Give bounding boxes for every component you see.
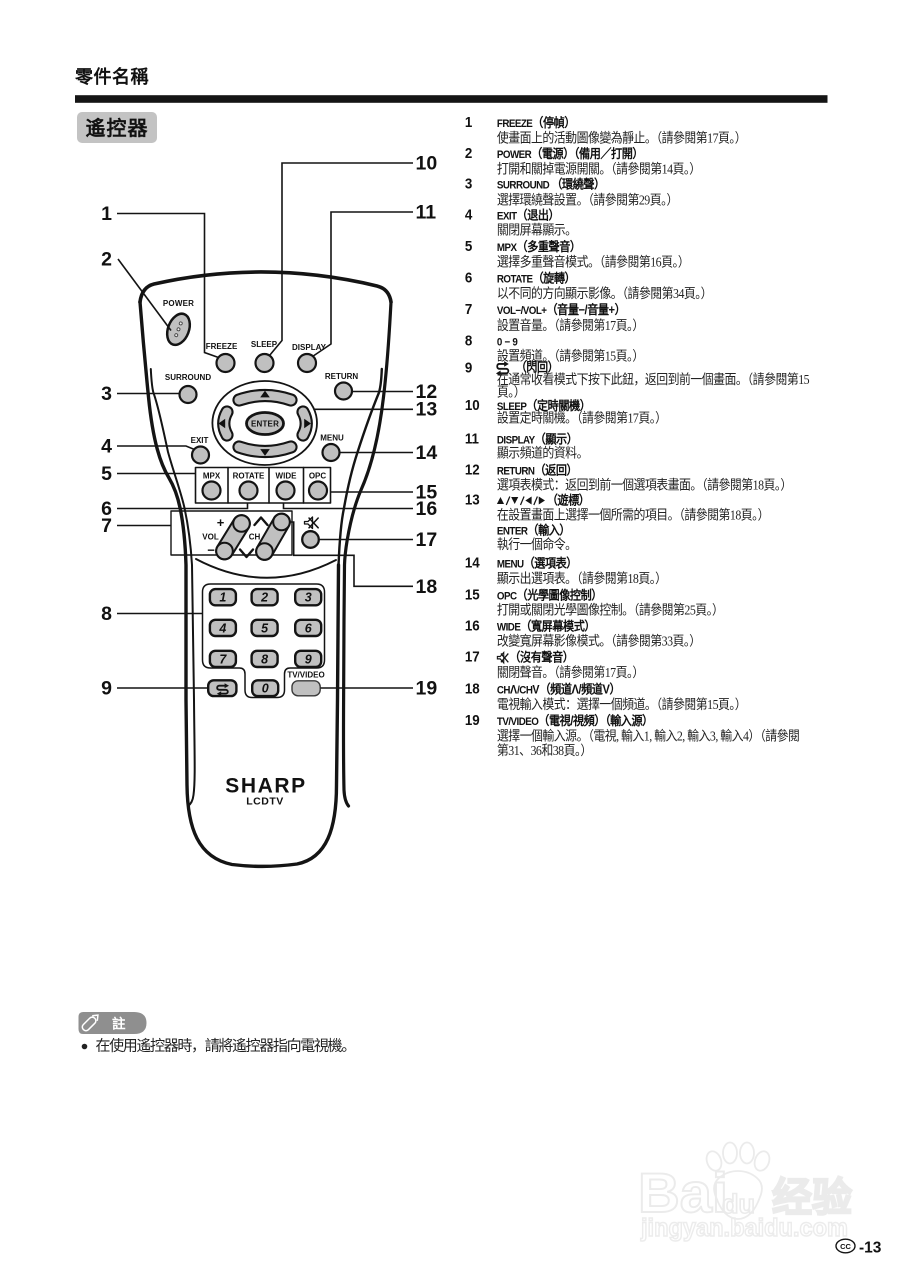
svg-text:4: 4 (218, 621, 226, 635)
svg-text:使畫面上的活動圖像變為靜止。（請參閱第17頁。）: 使畫面上的活動圖像變為靜止。（請參閱第17頁。） (497, 130, 746, 146)
svg-text:WIDE: WIDE (276, 472, 298, 481)
svg-text:13: 13 (416, 399, 438, 421)
svg-text:11: 11 (416, 202, 437, 224)
svg-text:ROTATE: ROTATE (233, 472, 265, 481)
svg-text:CH: CH (249, 533, 261, 542)
svg-text:WIDE（寬屏幕模式）: WIDE（寬屏幕模式） (497, 619, 595, 634)
svg-text:4: 4 (465, 207, 473, 224)
svg-text:EXIT: EXIT (191, 436, 209, 445)
svg-text:16: 16 (465, 618, 480, 635)
svg-text:POWER: POWER (163, 299, 194, 308)
svg-text:0: 0 (262, 682, 269, 696)
svg-text:4: 4 (101, 436, 112, 458)
svg-text:MPX: MPX (203, 472, 221, 481)
svg-text:在設置畫面上選擇一個所需的項目。（請參閱第18頁。）: 在設置畫面上選擇一個所需的項目。（請參閱第18頁。） (497, 507, 769, 523)
svg-text:8: 8 (465, 333, 473, 350)
svg-text:SURROUND （環繞聲）: SURROUND （環繞聲） (497, 177, 605, 192)
svg-text:7: 7 (219, 652, 227, 666)
svg-text:-13: -13 (859, 1240, 882, 1257)
svg-text:RETURN: RETURN (325, 372, 359, 381)
svg-text:SURROUND: SURROUND (165, 373, 211, 382)
svg-text:SHARP: SHARP (225, 775, 307, 798)
svg-text:9: 9 (465, 360, 473, 377)
svg-text:OPC（光學圖像控制）: OPC（光學圖像控制） (497, 588, 602, 603)
svg-text:1: 1 (219, 591, 226, 605)
svg-text:打開或關閉光學圖像控制。（請參閱第25頁。）: 打開或關閉光學圖像控制。（請參閱第25頁。） (497, 603, 724, 618)
svg-text:以不同的方向顯示影像。（請參閱第34頁。）: 以不同的方向顯示影像。（請參閱第34頁。） (497, 285, 712, 301)
svg-text:18: 18 (465, 681, 480, 698)
svg-text:5: 5 (101, 463, 112, 485)
svg-text:打開和關掉電源開關。（請參閱第14頁。）: 打開和關掉電源開關。（請參閱第14頁。） (497, 162, 701, 177)
svg-text:選擇環繞聲設置。（請參閱第29頁。）: 選擇環繞聲設置。（請參閱第29頁。） (497, 192, 678, 208)
svg-text:18: 18 (416, 576, 438, 598)
svg-text:9: 9 (101, 678, 112, 700)
svg-text:在通常收看模式下按下此鈕，返回到前一個畫面。（請參閱第15: 在通常收看模式下按下此鈕，返回到前一個畫面。（請參閱第15 (497, 371, 809, 387)
svg-text:FREEZE: FREEZE (206, 342, 238, 351)
svg-text:頁。）: 頁。） (497, 385, 525, 400)
svg-text:SLEEP: SLEEP (251, 340, 278, 349)
svg-text:7: 7 (101, 515, 112, 537)
svg-text:改變寬屏幕影像模式。（請參閱第33頁。）: 改變寬屏幕影像模式。（請參閱第33頁。） (497, 633, 701, 649)
svg-text:12: 12 (465, 462, 480, 479)
svg-text:8: 8 (101, 603, 112, 625)
svg-text:MPX（多重聲音）: MPX（多重聲音） (497, 239, 581, 254)
svg-text:6: 6 (305, 621, 313, 635)
svg-text:6: 6 (465, 270, 473, 287)
svg-text:設置音量。（請參閱第17頁。）: 設置音量。（請參閱第17頁。） (497, 317, 644, 333)
svg-text:VOL: VOL (202, 533, 219, 542)
svg-text:設置定時關機。（請參閱第17頁。）: 設置定時關機。（請參閱第17頁。） (497, 410, 667, 426)
svg-text:顯示頻道的資料。: 顯示頻道的資料。 (497, 445, 588, 461)
svg-text:14: 14 (465, 555, 480, 572)
svg-text:LCDTV: LCDTV (246, 796, 284, 808)
svg-text:1: 1 (101, 203, 112, 225)
svg-text:16: 16 (416, 498, 438, 520)
svg-text:DISPLAY（顯示）: DISPLAY（顯示） (497, 432, 577, 447)
svg-text:MENU（選項表）: MENU（選項表） (497, 556, 577, 571)
svg-text:0 − 9: 0 − 9 (497, 337, 518, 349)
svg-text:執行一個命令。: 執行一個命令。 (497, 536, 577, 552)
svg-text:RETURN（返回）: RETURN（返回） (497, 463, 577, 478)
svg-text:TV/VIDEO: TV/VIDEO (287, 671, 324, 680)
svg-text:關閉屏幕顯示。: 關閉屏幕顯示。 (497, 223, 577, 238)
svg-text:14: 14 (416, 442, 438, 464)
svg-text:註: 註 (112, 1016, 126, 1032)
svg-text:+: + (217, 515, 225, 530)
svg-text:19: 19 (416, 678, 438, 700)
svg-text:OPC: OPC (309, 472, 327, 481)
svg-text:CHΛ/CHV（頻道Λ/頻道V）: CHΛ/CHV（頻道Λ/頻道V） (497, 682, 620, 697)
svg-text:VOL−/VOL+（音量−/音量+）: VOL−/VOL+（音量−/音量+） (497, 302, 625, 317)
svg-text:POWER（電源）（備用／打開）: POWER（電源）（備用／打開） (497, 146, 643, 161)
svg-text:ENTER（輸入）: ENTER（輸入） (497, 523, 570, 538)
svg-text:（沒有聲音）: （沒有聲音） (509, 650, 573, 665)
svg-text:遙控器: 遙控器 (86, 116, 149, 140)
svg-text:顯示出選項表。（請參閱第18頁。）: 顯示出選項表。（請參閱第18頁。） (497, 571, 667, 586)
svg-text:5: 5 (465, 238, 473, 255)
svg-text:10: 10 (465, 397, 480, 414)
svg-text:零件名稱: 零件名稱 (74, 66, 149, 87)
svg-text:17: 17 (465, 649, 480, 666)
svg-text:17: 17 (416, 529, 438, 551)
svg-text:3: 3 (101, 383, 112, 405)
svg-text:TV/VIDEO（電視/視頻）（輸入源）: TV/VIDEO（電視/視頻）（輸入源） (497, 713, 653, 728)
svg-text:ROTATE（旋轉）: ROTATE（旋轉） (497, 271, 575, 286)
svg-text:選項表模式：返回到前一個選項表畫面。（請參閱第18頁。）: 選項表模式：返回到前一個選項表畫面。（請參閱第18頁。） (497, 477, 792, 493)
svg-text:经验: 经验 (772, 1176, 852, 1220)
svg-text:11: 11 (465, 431, 479, 448)
svg-text:第31、36和38頁。）: 第31、36和38頁。） (497, 743, 592, 758)
svg-text:MENU: MENU (320, 434, 344, 443)
svg-text:3: 3 (465, 176, 473, 193)
svg-text:EXIT（退出）: EXIT（退出） (497, 208, 559, 223)
svg-text:選擇多重聲音模式。（請參閱第16頁。）: 選擇多重聲音模式。（請參閱第16頁。） (497, 254, 689, 270)
svg-text:CC: CC (840, 1242, 851, 1251)
svg-text:10: 10 (416, 153, 438, 175)
svg-text:15: 15 (465, 587, 480, 604)
svg-text:2: 2 (101, 249, 112, 271)
svg-text:選擇一個輸入源。（電視, 輸入1, 輸入2, 輸入3, 輸入: 選擇一個輸入源。（電視, 輸入1, 輸入2, 輸入3, 輸入4）（請參閱 (497, 728, 799, 744)
svg-text:13: 13 (465, 492, 480, 509)
svg-text:ENTER: ENTER (251, 420, 279, 429)
svg-text:電視輸入模式：選擇一個頻道。（請參閱第15頁。）: 電視輸入模式：選擇一個頻道。（請參閱第15頁。） (497, 696, 746, 712)
svg-text:19: 19 (465, 712, 480, 729)
svg-text:關閉聲音。（請參閱第17頁。）: 關閉聲音。（請參閱第17頁。） (497, 664, 644, 680)
svg-text:9: 9 (305, 652, 312, 666)
svg-text:−: − (207, 543, 215, 558)
svg-text:在使用遙控器時，請將遙控器指向電視機。: 在使用遙控器時，請將遙控器指向電視機。 (96, 1038, 355, 1055)
svg-text:2: 2 (465, 145, 473, 162)
svg-text:（遊標）: （遊標） (547, 493, 590, 508)
svg-text:2: 2 (260, 591, 268, 605)
svg-text:5: 5 (261, 621, 269, 635)
svg-text:7: 7 (465, 301, 473, 318)
svg-text:3: 3 (305, 591, 312, 605)
svg-text:FREEZE（停幀）: FREEZE（停幀） (497, 115, 575, 130)
svg-text:1: 1 (465, 114, 473, 131)
svg-text:8: 8 (261, 652, 268, 666)
